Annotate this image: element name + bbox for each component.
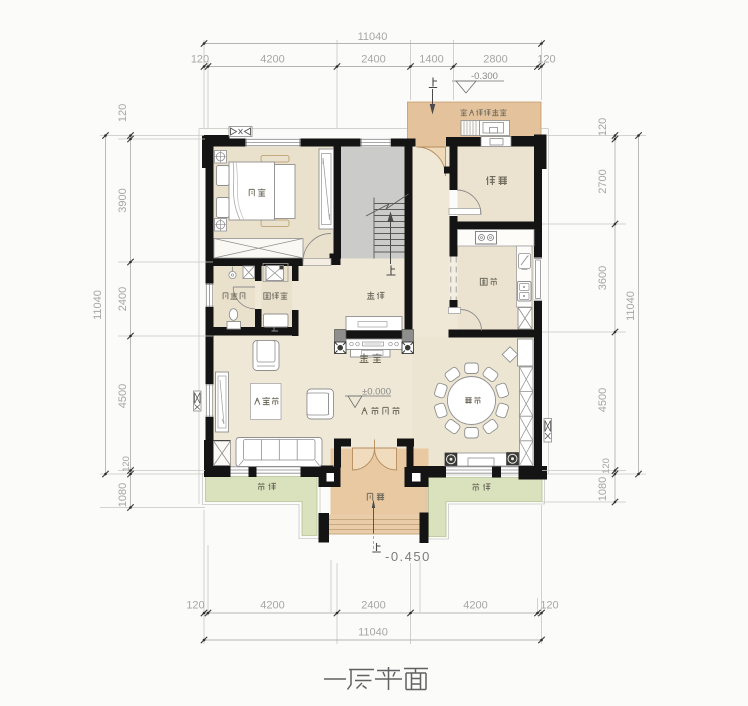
svg-text:-0.450: -0.450 (385, 549, 431, 564)
svg-text:1400: 1400 (419, 54, 443, 66)
svg-text:11040: 11040 (358, 31, 388, 43)
svg-text:2400: 2400 (117, 287, 129, 311)
svg-text:4500: 4500 (117, 384, 129, 408)
svg-text:3600: 3600 (597, 266, 609, 290)
svg-text:-0.300: -0.300 (471, 71, 498, 82)
svg-text:120: 120 (191, 54, 209, 66)
svg-text:2400: 2400 (361, 54, 385, 66)
svg-text:120: 120 (601, 458, 612, 474)
svg-text:120: 120 (537, 54, 555, 66)
svg-text:120: 120 (540, 600, 558, 612)
svg-text:11040: 11040 (625, 291, 637, 321)
svg-text:120: 120 (186, 600, 204, 612)
svg-text:11040: 11040 (92, 290, 104, 320)
svg-text:1080: 1080 (117, 483, 129, 507)
svg-text:2700: 2700 (597, 169, 609, 193)
svg-text:2800: 2800 (483, 54, 507, 66)
svg-text:120: 120 (117, 104, 129, 122)
svg-text:3900: 3900 (117, 188, 129, 212)
svg-text:1080: 1080 (597, 477, 609, 501)
svg-text:4200: 4200 (260, 54, 284, 66)
svg-text:4200: 4200 (463, 600, 487, 612)
svg-text:120: 120 (597, 118, 609, 136)
svg-text:2400: 2400 (361, 600, 385, 612)
svg-text:11040: 11040 (358, 627, 388, 639)
svg-text:4500: 4500 (597, 388, 609, 412)
svg-text:4200: 4200 (260, 600, 284, 612)
